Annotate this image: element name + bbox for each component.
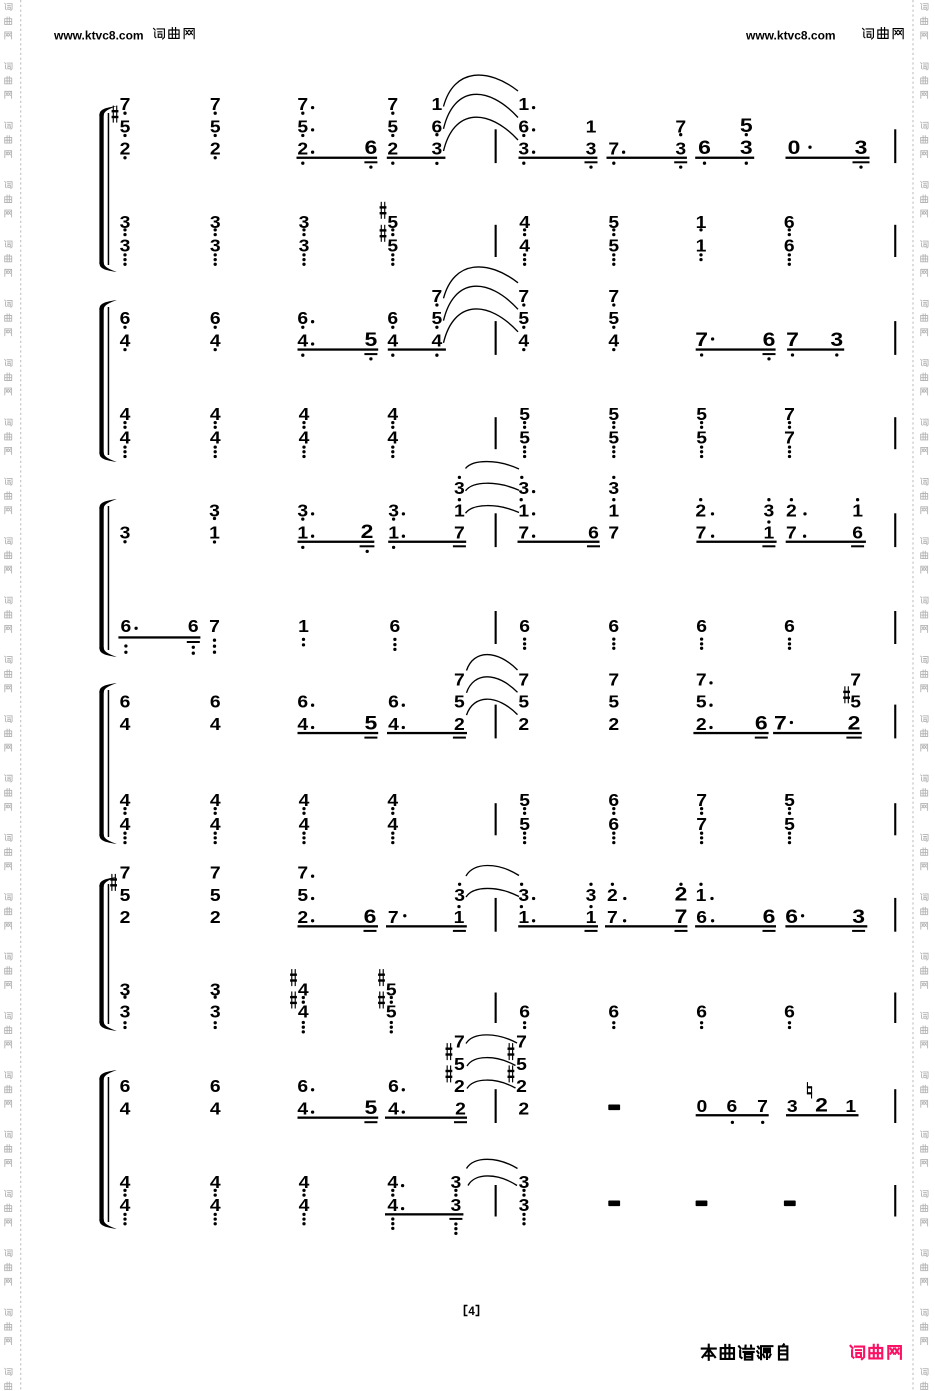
svg-text:5: 5	[210, 885, 221, 905]
svg-text:6: 6	[698, 137, 711, 159]
svg-text:3: 3	[586, 885, 597, 905]
svg-text:4: 4	[388, 1098, 400, 1118]
svg-text:3: 3	[388, 500, 399, 520]
svg-text:5: 5	[696, 428, 707, 448]
svg-text:6: 6	[364, 905, 377, 927]
svg-text:2: 2	[454, 1076, 465, 1096]
svg-text:5: 5	[519, 814, 530, 834]
svg-text:7: 7	[387, 94, 398, 114]
svg-text:6: 6	[519, 1001, 530, 1021]
svg-text:2: 2	[387, 138, 398, 158]
svg-text:7: 7	[675, 905, 688, 927]
svg-text:1: 1	[298, 616, 309, 636]
svg-text:7: 7	[608, 669, 619, 689]
svg-text:7: 7	[774, 712, 787, 734]
svg-text:3: 3	[299, 235, 310, 255]
svg-text:3: 3	[519, 1195, 530, 1215]
svg-text:6: 6	[365, 137, 378, 159]
svg-text:4: 4	[432, 330, 444, 350]
svg-text:6: 6	[518, 116, 529, 136]
svg-text:4: 4	[518, 330, 530, 350]
svg-text:3: 3	[454, 885, 465, 905]
svg-text:2: 2	[608, 714, 619, 734]
svg-text:1: 1	[608, 500, 619, 520]
svg-text:6: 6	[297, 691, 308, 711]
svg-text:4: 4	[387, 330, 399, 350]
svg-text:4: 4	[299, 428, 311, 448]
svg-text:2: 2	[696, 714, 707, 734]
svg-text:3: 3	[830, 328, 843, 350]
svg-text:5: 5	[850, 691, 861, 711]
svg-text:6: 6	[852, 522, 863, 542]
svg-text:3: 3	[120, 235, 131, 255]
svg-text:5: 5	[365, 328, 378, 350]
svg-text:1: 1	[518, 907, 529, 927]
svg-text:4: 4	[120, 814, 132, 834]
svg-text:1: 1	[388, 522, 399, 542]
svg-text:6: 6	[784, 1001, 795, 1021]
svg-text:6: 6	[210, 308, 221, 328]
svg-text:6: 6	[696, 1001, 707, 1021]
svg-text:5: 5	[784, 814, 795, 834]
svg-text:1: 1	[209, 522, 220, 542]
svg-text:1: 1	[696, 885, 707, 905]
svg-text:2: 2	[454, 714, 465, 734]
svg-text:2: 2	[210, 138, 221, 158]
svg-text:6: 6	[388, 1076, 399, 1096]
svg-text:6: 6	[120, 308, 131, 328]
svg-text:7: 7	[608, 138, 619, 158]
svg-text:2: 2	[848, 712, 861, 734]
svg-text:7: 7	[608, 522, 619, 542]
svg-text:3: 3	[454, 478, 465, 498]
svg-text:1: 1	[454, 500, 465, 520]
svg-text:3: 3	[518, 138, 529, 158]
svg-text:3: 3	[852, 905, 865, 927]
svg-text:6: 6	[785, 905, 798, 927]
svg-text:5: 5	[516, 1054, 527, 1074]
svg-text:1: 1	[586, 907, 597, 927]
svg-text:4: 4	[210, 714, 222, 734]
svg-text:7: 7	[297, 862, 308, 882]
svg-text:7: 7	[518, 522, 529, 542]
svg-text:5: 5	[432, 308, 443, 328]
svg-text:6: 6	[388, 691, 399, 711]
svg-text:2: 2	[120, 138, 131, 158]
svg-text:1: 1	[852, 500, 863, 520]
svg-text:4: 4	[210, 1195, 222, 1215]
svg-text:4: 4	[210, 1098, 222, 1118]
svg-text:3: 3	[210, 235, 221, 255]
svg-text:4: 4	[299, 814, 311, 834]
svg-text:4: 4	[297, 1098, 309, 1118]
svg-text:7: 7	[786, 522, 797, 542]
svg-text:7: 7	[850, 669, 861, 689]
svg-text:2: 2	[120, 907, 131, 927]
svg-text:www.ktvc8.com: www.ktvc8.com	[53, 29, 144, 43]
svg-text:4: 4	[210, 428, 222, 448]
svg-text:2: 2	[815, 1094, 828, 1116]
svg-text:5: 5	[608, 428, 619, 448]
svg-text:3: 3	[675, 138, 686, 158]
svg-text:5: 5	[210, 116, 221, 136]
svg-text:1: 1	[297, 522, 308, 542]
svg-text:2: 2	[607, 885, 618, 905]
svg-text:6: 6	[696, 616, 707, 636]
svg-text:4: 4	[298, 1001, 310, 1021]
svg-text:3: 3	[740, 137, 753, 159]
svg-text:4: 4	[120, 330, 132, 350]
svg-text:7: 7	[210, 94, 221, 114]
svg-text:4: 4	[210, 814, 222, 834]
svg-text:5: 5	[365, 712, 378, 734]
svg-text:6: 6	[120, 1076, 131, 1096]
svg-text:6: 6	[210, 1076, 221, 1096]
svg-text:5: 5	[608, 235, 619, 255]
svg-text:www.ktvc8.com: www.ktvc8.com	[745, 29, 836, 43]
svg-text:2: 2	[210, 907, 221, 927]
svg-text:1: 1	[845, 1096, 856, 1116]
svg-text:3: 3	[586, 138, 597, 158]
svg-text:2: 2	[518, 714, 529, 734]
svg-text:5: 5	[297, 116, 308, 136]
svg-text:7: 7	[210, 862, 221, 882]
svg-text:2: 2	[361, 521, 374, 543]
svg-text:6: 6	[188, 616, 199, 636]
svg-text:4: 4	[388, 714, 400, 734]
svg-text:5: 5	[608, 691, 619, 711]
svg-text:3: 3	[518, 478, 529, 498]
svg-text:2: 2	[518, 1098, 529, 1118]
svg-text:3: 3	[120, 1001, 131, 1021]
svg-text:3: 3	[432, 138, 443, 158]
svg-text:4: 4	[387, 814, 399, 834]
svg-text:1: 1	[518, 500, 529, 520]
svg-text:4: 4	[299, 1195, 311, 1215]
svg-text:6: 6	[390, 616, 401, 636]
svg-text:6: 6	[696, 907, 707, 927]
svg-text:7: 7	[696, 669, 707, 689]
svg-text:7: 7	[696, 814, 707, 834]
svg-text:4: 4	[297, 714, 309, 734]
svg-text:7: 7	[518, 286, 529, 306]
svg-text:3: 3	[210, 1001, 221, 1021]
svg-text:7: 7	[516, 1031, 527, 1051]
svg-text:6: 6	[519, 616, 530, 636]
svg-text:7: 7	[454, 1031, 465, 1051]
svg-text:4: 4	[120, 714, 132, 734]
svg-text:5: 5	[519, 428, 530, 448]
svg-text:4: 4	[210, 330, 222, 350]
svg-text:4: 4	[297, 330, 309, 350]
svg-text:1: 1	[432, 94, 443, 114]
svg-text:7: 7	[784, 428, 795, 448]
svg-text:7: 7	[120, 94, 131, 114]
svg-text:5: 5	[608, 308, 619, 328]
svg-text:6: 6	[121, 616, 132, 636]
svg-text:3: 3	[608, 478, 619, 498]
svg-text:6: 6	[210, 691, 221, 711]
svg-text:5: 5	[454, 691, 465, 711]
svg-text:6: 6	[763, 328, 776, 350]
svg-text:6: 6	[727, 1096, 738, 1116]
svg-text:2: 2	[786, 500, 797, 520]
svg-text:5: 5	[387, 235, 398, 255]
svg-text:4: 4	[120, 1195, 132, 1215]
svg-text:4: 4	[608, 330, 620, 350]
svg-text:5: 5	[297, 885, 308, 905]
svg-text:7: 7	[388, 907, 399, 927]
svg-text:2: 2	[675, 883, 688, 905]
svg-text:1: 1	[696, 235, 707, 255]
svg-text:7: 7	[209, 616, 220, 636]
svg-text:2: 2	[297, 138, 308, 158]
svg-text:6: 6	[763, 905, 776, 927]
svg-text:6: 6	[297, 308, 308, 328]
svg-text:5: 5	[454, 1054, 465, 1074]
svg-text:5: 5	[696, 691, 707, 711]
svg-text:5: 5	[365, 1097, 378, 1119]
svg-text:5: 5	[387, 116, 398, 136]
svg-text:2: 2	[695, 500, 706, 520]
svg-text:5: 5	[120, 885, 131, 905]
svg-text:1: 1	[764, 522, 775, 542]
svg-text:0: 0	[788, 137, 801, 159]
svg-text:7: 7	[695, 328, 708, 350]
svg-text:7: 7	[607, 907, 618, 927]
svg-text:4: 4	[468, 1306, 475, 1318]
svg-text:2: 2	[455, 1098, 466, 1118]
svg-text:3: 3	[764, 500, 775, 520]
svg-text:3: 3	[787, 1096, 798, 1116]
svg-text:7: 7	[608, 286, 619, 306]
svg-text:0: 0	[697, 1096, 708, 1116]
svg-text:6: 6	[784, 235, 795, 255]
svg-text:6: 6	[784, 616, 795, 636]
svg-text:7: 7	[757, 1096, 768, 1116]
svg-text:6: 6	[387, 308, 398, 328]
svg-text:3: 3	[451, 1195, 462, 1215]
svg-text:6: 6	[297, 1076, 308, 1096]
svg-text:7: 7	[432, 286, 443, 306]
svg-text:1: 1	[586, 116, 597, 136]
svg-text:4: 4	[120, 428, 132, 448]
svg-text:3: 3	[518, 885, 529, 905]
svg-text:7: 7	[120, 862, 131, 882]
svg-text:5: 5	[518, 308, 529, 328]
svg-text:2: 2	[297, 907, 308, 927]
svg-text:7: 7	[696, 522, 707, 542]
svg-text:2: 2	[516, 1076, 527, 1096]
svg-text:4: 4	[120, 1098, 132, 1118]
svg-text:3: 3	[297, 500, 308, 520]
svg-text:1: 1	[518, 94, 529, 114]
svg-text:6: 6	[120, 691, 131, 711]
svg-text:6: 6	[608, 616, 619, 636]
svg-text:7: 7	[297, 94, 308, 114]
svg-text:5: 5	[518, 691, 529, 711]
svg-text:7: 7	[518, 669, 529, 689]
svg-text:6: 6	[608, 1001, 619, 1021]
svg-text:4: 4	[519, 235, 531, 255]
svg-text:3: 3	[855, 137, 868, 159]
svg-text:5: 5	[386, 1001, 397, 1021]
svg-text:6: 6	[588, 522, 599, 542]
svg-text:6: 6	[755, 712, 768, 734]
svg-text:4: 4	[387, 428, 399, 448]
svg-text:5: 5	[120, 116, 131, 136]
svg-text:1: 1	[454, 907, 465, 927]
svg-text:3: 3	[120, 522, 131, 542]
svg-text:7: 7	[454, 669, 465, 689]
svg-text:6: 6	[608, 814, 619, 834]
svg-text:7: 7	[454, 522, 465, 542]
svg-text:4: 4	[387, 1195, 399, 1215]
svg-text:7: 7	[786, 328, 799, 350]
